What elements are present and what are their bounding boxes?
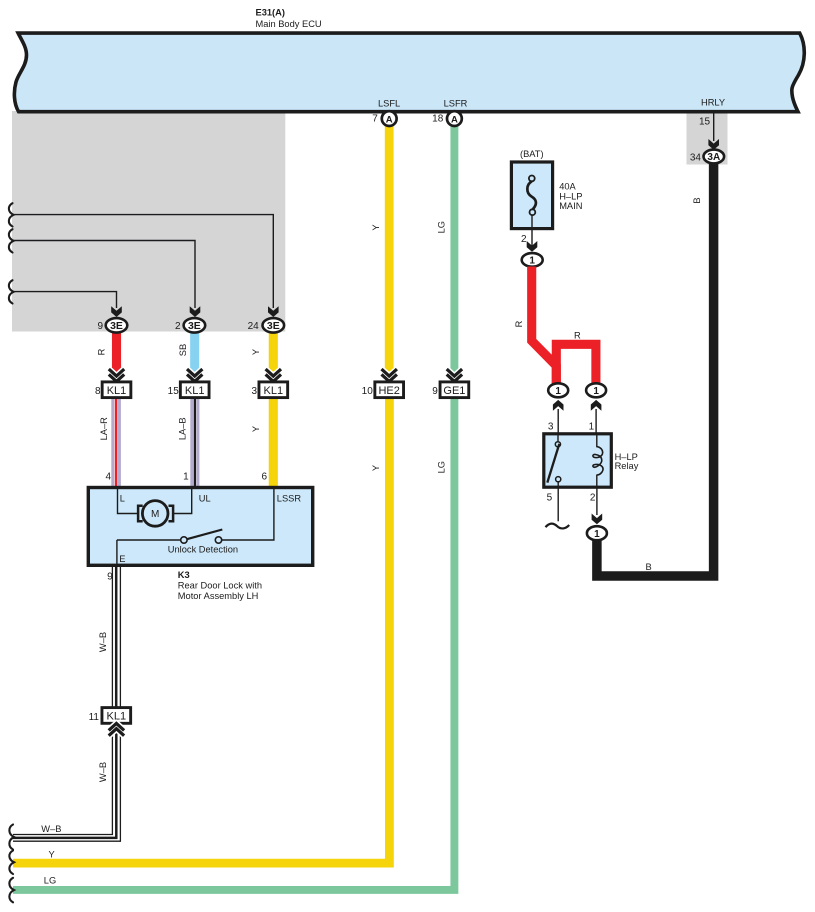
svg-text:K3: K3: [178, 570, 190, 580]
svg-text:Y: Y: [251, 349, 261, 355]
svg-text:9: 9: [432, 386, 438, 397]
svg-text:LA–B: LA–B: [178, 417, 188, 440]
svg-text:M: M: [151, 509, 159, 520]
svg-text:24: 24: [248, 321, 260, 332]
svg-text:Motor Assembly LH: Motor Assembly LH: [178, 591, 259, 601]
svg-text:R: R: [96, 348, 106, 355]
svg-text:2: 2: [590, 492, 596, 503]
svg-text:UL: UL: [199, 493, 211, 503]
svg-text:LG: LG: [44, 876, 56, 886]
svg-text:W–B: W–B: [98, 762, 108, 782]
svg-text:HRLY: HRLY: [701, 98, 725, 108]
svg-text:LSFR: LSFR: [444, 98, 468, 108]
svg-text:34: 34: [690, 152, 702, 163]
svg-text:R: R: [574, 331, 581, 341]
svg-text:Y: Y: [371, 224, 381, 230]
svg-text:15: 15: [699, 116, 711, 127]
svg-text:15: 15: [168, 386, 180, 397]
svg-text:MAIN: MAIN: [559, 201, 582, 211]
svg-text:KL1: KL1: [107, 385, 127, 397]
svg-text:KL1: KL1: [185, 385, 205, 397]
svg-text:E: E: [119, 554, 125, 564]
svg-text:10: 10: [362, 386, 374, 397]
svg-text:3: 3: [251, 386, 257, 397]
svg-text:1: 1: [529, 256, 535, 267]
svg-text:LA–R: LA–R: [99, 417, 109, 441]
svg-text:L: L: [120, 493, 125, 503]
svg-text:LG: LG: [437, 461, 447, 473]
svg-text:Relay: Relay: [615, 461, 639, 471]
svg-text:5: 5: [547, 493, 553, 504]
svg-text:3: 3: [548, 422, 554, 433]
svg-text:2: 2: [521, 234, 527, 245]
svg-text:3E: 3E: [188, 320, 201, 332]
svg-text:1: 1: [593, 386, 599, 397]
svg-text:18: 18: [432, 114, 444, 125]
svg-text:Main Body ECU: Main Body ECU: [256, 19, 322, 29]
svg-text:Y: Y: [371, 465, 381, 471]
svg-text:1: 1: [594, 529, 600, 540]
svg-text:A: A: [386, 114, 393, 125]
svg-text:SB: SB: [178, 344, 188, 356]
svg-text:4: 4: [105, 472, 111, 483]
svg-text:2: 2: [175, 321, 181, 332]
svg-text:Y: Y: [251, 426, 261, 432]
svg-text:H–LP: H–LP: [559, 191, 582, 201]
svg-text:(BAT): (BAT): [520, 149, 544, 159]
svg-text:9: 9: [97, 321, 103, 332]
svg-text:GE1: GE1: [443, 385, 465, 397]
svg-text:8: 8: [95, 386, 101, 397]
svg-text:R: R: [514, 320, 524, 327]
svg-text:Unlock Detection: Unlock Detection: [168, 545, 238, 555]
svg-text:1: 1: [589, 422, 595, 433]
svg-text:HE2: HE2: [378, 385, 399, 397]
svg-text:LG: LG: [437, 221, 447, 233]
svg-text:11: 11: [89, 712, 100, 723]
svg-text:LSSR: LSSR: [277, 493, 302, 503]
svg-text:Y: Y: [49, 850, 55, 860]
svg-text:6: 6: [261, 472, 267, 483]
svg-text:B: B: [646, 562, 652, 572]
svg-text:3E: 3E: [110, 320, 123, 332]
svg-text:Rear Door Lock with: Rear Door Lock with: [178, 580, 262, 590]
svg-text:KL1: KL1: [264, 385, 284, 397]
svg-text:40A: 40A: [559, 182, 576, 192]
svg-text:1: 1: [183, 472, 189, 483]
svg-text:A: A: [451, 114, 458, 125]
svg-text:W–B: W–B: [41, 824, 61, 834]
svg-text:E31(A): E31(A): [256, 7, 285, 17]
svg-text:LSFL: LSFL: [378, 98, 400, 108]
svg-text:B: B: [692, 197, 702, 203]
svg-text:7: 7: [372, 114, 378, 125]
svg-text:1: 1: [555, 386, 561, 397]
svg-text:3E: 3E: [267, 320, 280, 332]
svg-text:3A: 3A: [707, 152, 720, 163]
svg-text:W–B: W–B: [98, 632, 108, 652]
